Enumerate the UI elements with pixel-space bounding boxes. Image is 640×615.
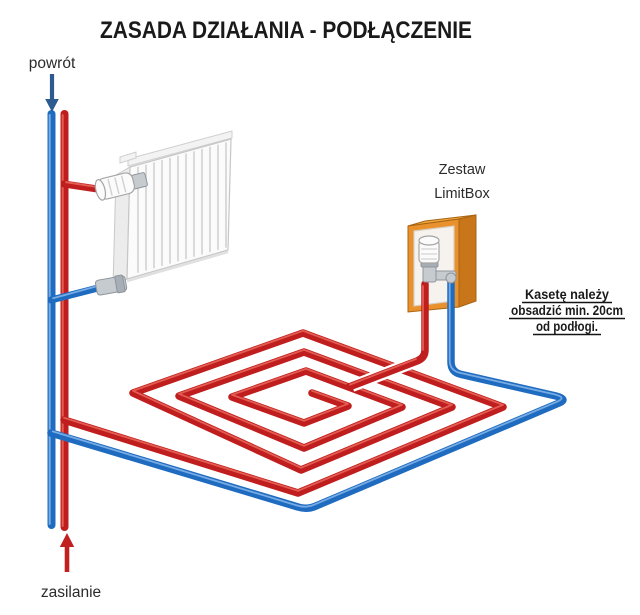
- return-label: powrót: [29, 55, 76, 72]
- note-line-1: Kasetę należy: [525, 287, 609, 302]
- limitbox-side: [459, 215, 476, 307]
- return-arrow-icon: [45, 74, 59, 112]
- kit-label-line2: LimitBox: [434, 186, 490, 202]
- diagram-svg: ZASADA DZIAŁANIA - PODŁĄCZENIE powrót za…: [0, 0, 640, 615]
- supply-arrow-icon: [60, 533, 74, 572]
- supply-label: zasilanie: [41, 584, 101, 601]
- radiator-return-pipe: [51, 285, 102, 300]
- note-line-2: obsadzić min. 20cm: [511, 303, 623, 318]
- heating-diagram-page: ZASADA DZIAŁANIA - PODŁĄCZENIE powrót za…: [0, 0, 640, 615]
- radiator: [113, 131, 232, 287]
- limitbox-valve-head: [419, 236, 439, 263]
- page-title: ZASADA DZIAŁANIA - PODŁĄCZENIE: [100, 17, 472, 44]
- installation-note: Kasetę należy obsadzić min. 20cm od podł…: [509, 287, 625, 335]
- note-line-3: od podłogi.: [536, 319, 598, 334]
- floor-return-perimeter-pipe: [51, 282, 563, 508]
- floor-supply-spiral-pipe: [64, 331, 503, 493]
- riser-pipes: [50, 114, 65, 527]
- kit-label-line1: Zestaw: [439, 162, 486, 178]
- limitbox-cabinet: [408, 215, 476, 312]
- radiator-return-valve: [95, 275, 127, 297]
